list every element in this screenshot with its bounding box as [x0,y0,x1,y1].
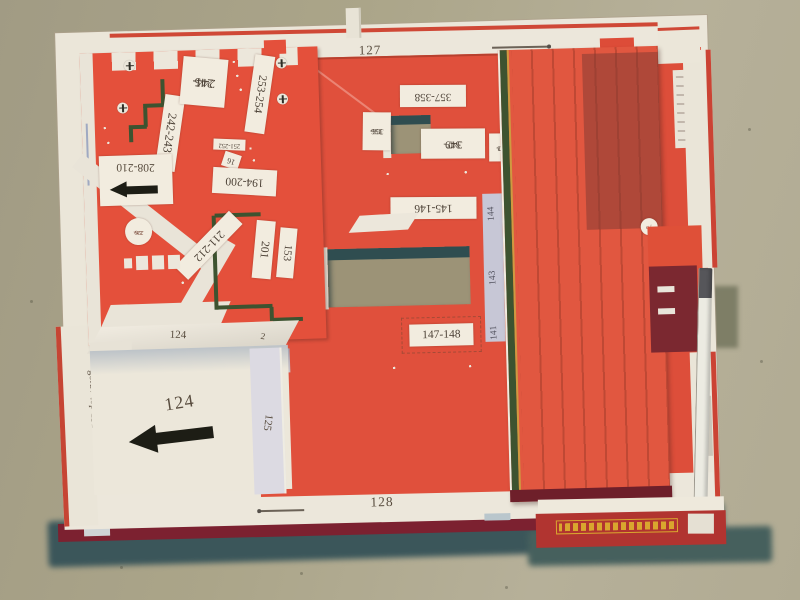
right-striped-panel: 75 [498,46,671,502]
left-arrow-shaft [126,185,158,194]
cardboard-speck [748,128,751,131]
notch-dash [657,286,674,292]
papercraft-model-photo: 127 128 góra / top 131 124 126 357-358 3… [0,0,800,600]
cutout-hole-large [327,246,470,307]
white-square [136,256,148,270]
label-244-245: 244-245 [179,56,228,108]
label-208-210-box: 208-210 [99,154,174,206]
yellow-text-banner [556,518,678,534]
notch-dash [658,308,675,314]
cardboard-speck [300,572,303,575]
cardboard-speck [120,566,123,569]
right-notch-dark [649,265,699,352]
paper-tab [264,40,286,55]
label-124-floor: 124 [152,388,206,416]
label-194-200: 194-200 [212,167,277,197]
cut-mark-line [260,509,304,512]
label-251-252: 251-252 [213,139,245,151]
divider-strip: 125 [249,347,286,494]
label-147-148: 147-148 [409,323,473,346]
hole-shadow-edge [327,246,469,260]
upper-left-box: 242-243 244-245 253-254 251-252 16 208-2… [79,46,326,345]
label-141: 141 [486,322,505,343]
bottom-right-white-patch [688,514,714,534]
paper-tab [346,8,362,38]
panel-dark-overlay [582,52,663,230]
label-124-box-edge: 124 [160,327,196,342]
left-arrow-shaft [155,426,214,445]
label-2-box-edge: 2 [255,329,271,343]
label-125: 125 [253,392,281,453]
left-arrow-head [127,425,158,456]
cut-mark-line [492,46,548,49]
cardboard-speck [30,300,33,303]
left-arrow-icon [127,417,226,456]
green-line-segment [129,128,133,142]
bottom-right-box-front [536,510,727,548]
left-arrow-icon [110,180,161,199]
cardboard-speck [760,360,763,363]
bottom-border-patch [484,513,510,521]
white-square [168,255,180,269]
white-square [152,255,164,269]
cardboard-speck [505,586,508,589]
label-128: 128 [360,494,404,511]
label-208-210: 208-210 [103,157,168,175]
left-arrow-head [110,181,127,198]
right-red-tab [647,225,702,270]
white-square [124,258,132,268]
